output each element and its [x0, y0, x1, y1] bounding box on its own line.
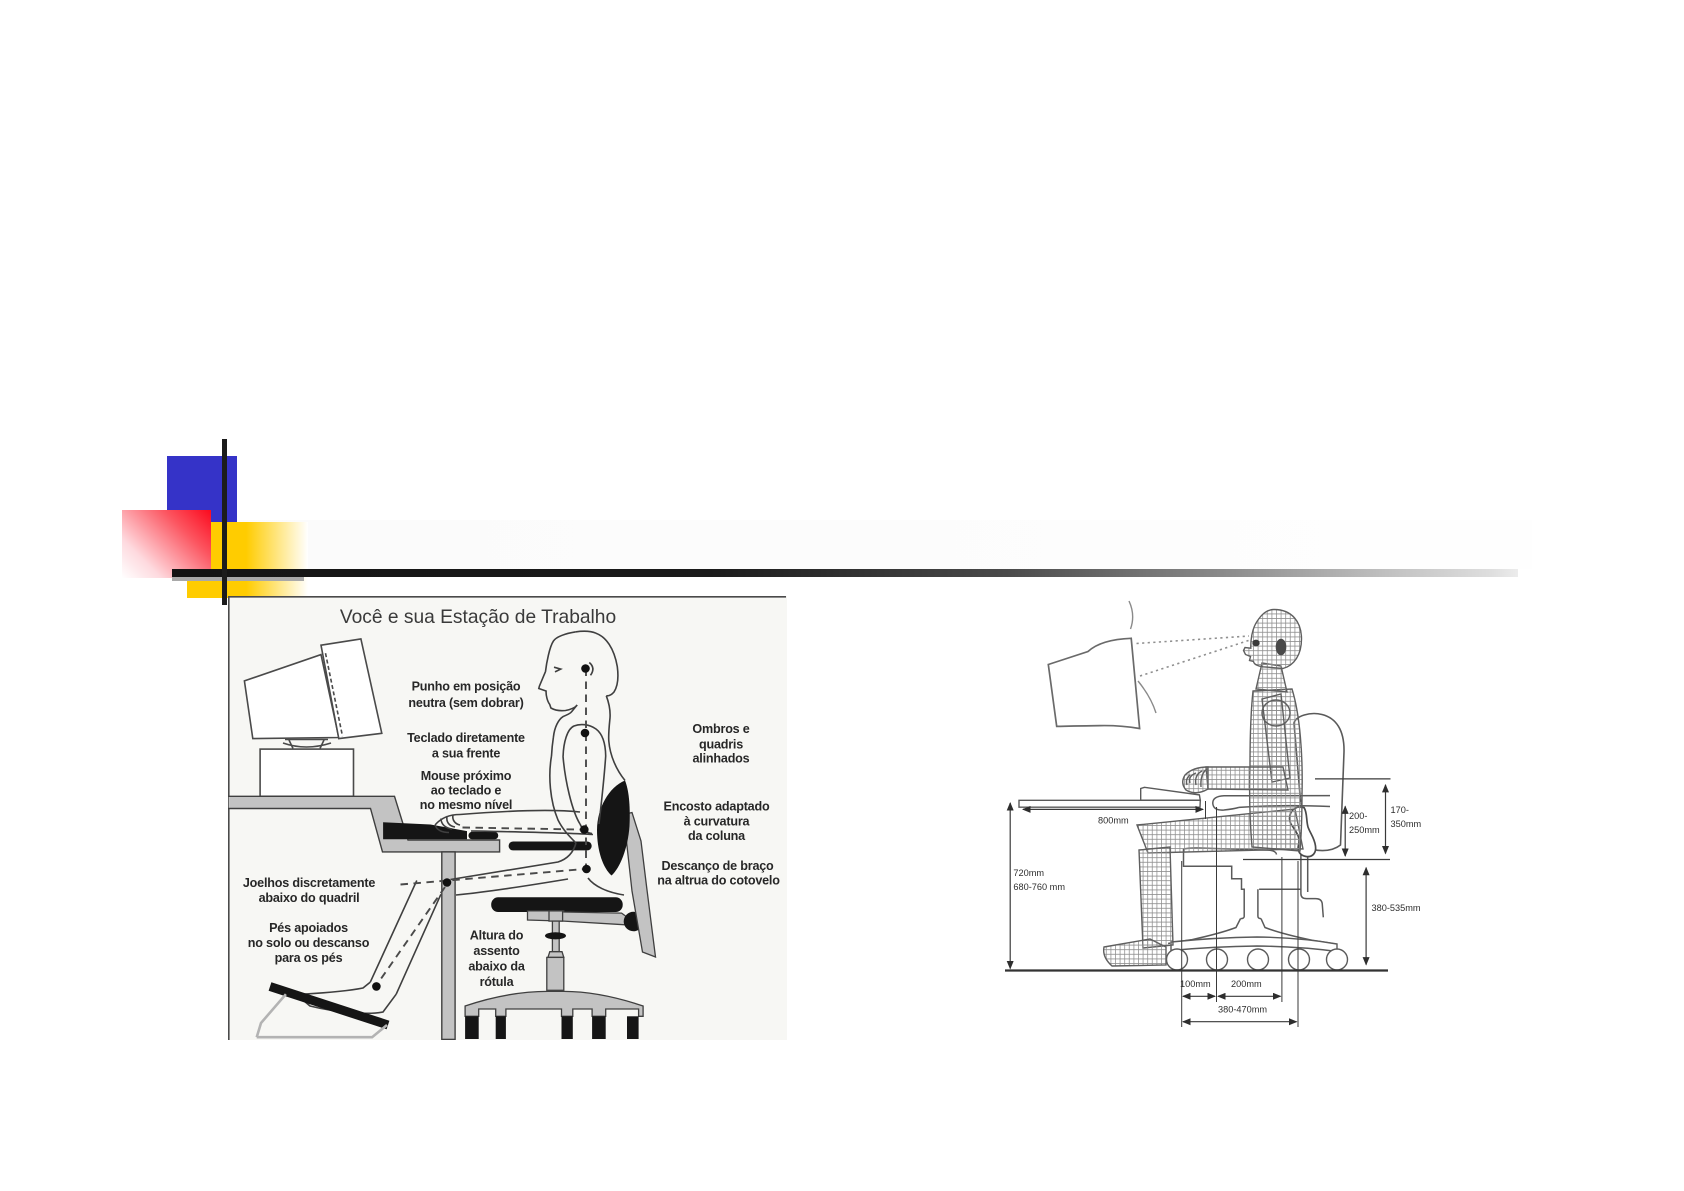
svg-text:170-: 170- [1391, 805, 1409, 815]
svg-text:assento: assento [473, 944, 520, 958]
svg-text:quadris: quadris [698, 737, 742, 751]
svg-text:à curvatura: à curvatura [683, 814, 750, 828]
svg-text:Mouse próximo: Mouse próximo [420, 769, 511, 783]
svg-text:alinhados: alinhados [692, 751, 749, 765]
svg-text:Pés apoiados: Pés apoiados [269, 921, 348, 935]
svg-text:no solo ou descanso: no solo ou descanso [247, 936, 369, 950]
svg-text:380-470mm: 380-470mm [1218, 1005, 1267, 1015]
svg-text:a sua frente: a sua frente [431, 746, 499, 760]
svg-text:Ombros e: Ombros e [692, 722, 749, 736]
svg-text:680-760 mm: 680-760 mm [1013, 882, 1065, 892]
svg-text:no mesmo nível: no mesmo nível [419, 798, 511, 812]
svg-text:250mm: 250mm [1349, 825, 1380, 835]
svg-text:abaixo da: abaixo da [468, 959, 525, 973]
svg-text:Encosto adaptado: Encosto adaptado [663, 799, 769, 813]
svg-text:Você e sua Estação de Trabalho: Você e sua Estação de Trabalho [339, 607, 615, 628]
svg-text:Joelhos discretamente: Joelhos discretamente [242, 876, 374, 890]
svg-text:720mm: 720mm [1013, 868, 1044, 878]
svg-text:Altura do: Altura do [469, 928, 523, 942]
svg-text:800mm: 800mm [1098, 816, 1129, 826]
svg-text:200mm: 200mm [1231, 979, 1262, 989]
svg-text:Descanço de braço: Descanço de braço [661, 859, 774, 873]
svg-text:ao teclado e: ao teclado e [430, 783, 501, 797]
svg-text:Punho em posição: Punho em posição [411, 679, 520, 693]
svg-text:abaixo do quadril: abaixo do quadril [258, 891, 359, 905]
svg-text:380-535mm: 380-535mm [1372, 903, 1421, 913]
svg-text:Teclado diretamente: Teclado diretamente [407, 731, 525, 745]
svg-text:da coluna: da coluna [688, 828, 746, 842]
svg-text:100mm: 100mm [1180, 979, 1211, 989]
svg-text:neutra (sem dobrar): neutra (sem dobrar) [408, 696, 523, 710]
svg-text:200-: 200- [1349, 811, 1367, 821]
svg-text:rótula: rótula [479, 975, 514, 989]
svg-text:350mm: 350mm [1391, 819, 1422, 829]
svg-text:para os pés: para os pés [274, 951, 342, 965]
svg-text:na altrua do cotovelo: na altrua do cotovelo [657, 873, 780, 887]
